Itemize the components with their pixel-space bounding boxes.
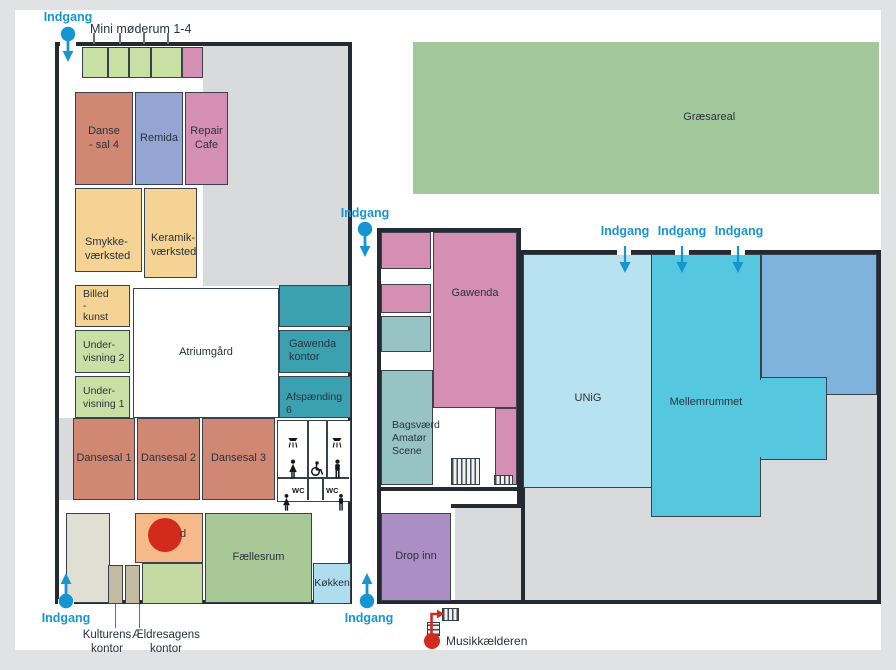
floor-plan-canvas: Græsareal Danse - sal 4 Remida Repair Ca… — [0, 0, 896, 670]
room-teal-unnamed — [279, 285, 351, 327]
woman-icon — [282, 481, 291, 511]
gawenda-kontor-label: Gawenda kontor — [289, 338, 336, 365]
faellesrum-label: Fællesrum — [233, 551, 285, 564]
unig-label: UNiG — [575, 392, 602, 405]
room-pink-b — [381, 284, 431, 313]
room-dark-blue — [761, 254, 877, 395]
room-faellesrum: Fællesrum — [205, 513, 312, 603]
room-aeldresagens-kontor — [125, 565, 140, 604]
dansesal-1-label: Dansesal 1 — [76, 452, 131, 465]
indgang-label: Indgang — [595, 224, 655, 238]
indgang-label: Indgang — [38, 611, 94, 625]
room-pink-sliver — [182, 47, 203, 78]
room-mini-moderum-3 — [129, 47, 151, 78]
man-icon — [333, 446, 342, 479]
aeldresagens-kontor-label: Ældresagens kontor — [128, 629, 204, 656]
room-repair-cafe: Repair Cafe — [185, 92, 228, 185]
room-atriumgaard: Atriumgård — [133, 288, 279, 418]
room-danse-sal-4: Danse - sal 4 — [75, 92, 133, 185]
wc-label: WC — [292, 486, 305, 495]
room-teal-c — [381, 316, 431, 352]
callout-tick — [143, 33, 145, 44]
room-billard: d — [135, 513, 203, 563]
room-keramikvaerksted: Keramik- værksted — [144, 188, 197, 278]
entrance-arrow-down-icon — [618, 246, 632, 274]
gawenda-label: Gawenda — [451, 287, 498, 300]
room-dansesal-2: Dansesal 2 — [137, 418, 200, 500]
indgang-label: Indgang — [652, 224, 712, 238]
room-pale-green — [142, 563, 203, 604]
room-pink-a — [381, 232, 431, 269]
callout-tick — [93, 33, 95, 44]
room-mini-moderum-1 — [82, 47, 108, 78]
callout-tick — [119, 33, 121, 44]
middle-lower-grey-area — [455, 508, 521, 600]
indgang-label: Indgang — [709, 224, 769, 238]
undervisning-2-label: Under- visning 2 — [83, 339, 124, 365]
room-unig: UNiG — [523, 254, 653, 488]
room-mini-moderum-4 — [151, 47, 182, 78]
room-koekken: Køkken — [313, 563, 351, 604]
repair-cafe-label: Repair Cafe — [190, 125, 222, 152]
room-billedkunst: Billed - kunst — [75, 285, 130, 327]
stairs-icon — [494, 475, 513, 485]
smykke-label: Smykke- værksted — [85, 236, 130, 263]
entrance-arrow-down-icon — [731, 246, 745, 274]
room-dansesal-1: Dansesal 1 — [73, 418, 135, 500]
room-remida: Remida — [135, 92, 183, 185]
indgang-label: Indgang — [335, 206, 395, 220]
callout-tick — [167, 33, 169, 44]
stairs-icon — [451, 458, 480, 485]
room-drop-inn: Drop inn — [381, 513, 451, 601]
koekken-label: Køkken — [314, 577, 350, 590]
dansesal-3-label: Dansesal 3 — [211, 452, 266, 465]
dansesal-2-label: Dansesal 2 — [141, 452, 196, 465]
callout-leader-line — [115, 604, 116, 628]
callout-leader-line — [139, 604, 140, 628]
mellemrummet-label: Mellemrummet — [670, 396, 743, 409]
billedkunst-label: Billed - kunst — [83, 289, 109, 324]
entrance-pin-icon — [60, 26, 76, 64]
man-icon — [337, 481, 345, 511]
danse-sal-4-label: Danse - sal 4 — [88, 125, 120, 152]
remida-label: Remida — [140, 132, 178, 145]
room-undervisning-1: Under- visning 1 — [75, 376, 130, 418]
room-mini-moderum-2 — [108, 47, 129, 78]
bagsvaerd-label: Bagsværd Amatør Scene — [392, 419, 440, 457]
mellemrummet-seam-patch — [756, 380, 763, 457]
room-gawenda-kontor: Gawenda kontor — [279, 330, 351, 373]
room-pink-column — [495, 408, 517, 485]
keramik-label: Keramik- værksted — [151, 232, 196, 259]
room-undervisning-2: Under- visning 2 — [75, 330, 130, 373]
indgang-label: Indgang — [341, 611, 397, 625]
room-gawenda: Gawenda — [433, 232, 517, 408]
musikkaelderen-label: Musikkælderen — [446, 634, 527, 648]
location-marker-icon — [148, 518, 182, 552]
room-mellemrummet-extension — [759, 377, 827, 460]
room-bagsvaerd-amatoer-scene: Bagsværd Amatør Scene — [381, 370, 433, 485]
entrance-pin-icon — [357, 221, 373, 259]
bent-arrow-icon — [428, 609, 446, 636]
graesareal-label: Græsareal — [683, 111, 735, 124]
afspaending-6-label: Afspænding 6 — [286, 391, 350, 417]
undervisning-1-label: Under- visning 1 — [83, 385, 124, 411]
indgang-label: Indgang — [38, 10, 98, 24]
room-dansesal-3: Dansesal 3 — [202, 418, 275, 500]
location-marker-icon — [424, 633, 440, 649]
area-graesareal: Græsareal — [413, 42, 879, 194]
middle-building-cross-wall — [377, 487, 521, 491]
mini-moderum-label: Mini møderum 1-4 — [90, 22, 191, 36]
woman-icon — [288, 446, 298, 479]
wheelchair-icon — [310, 448, 325, 477]
entrance-arrow-down-icon — [675, 246, 689, 274]
room-mellemrummet: Mellemrummet — [651, 254, 761, 517]
entrance-pin-icon — [359, 571, 375, 609]
room-afspaending-6: Afspænding 6 — [279, 376, 351, 418]
left-building-grey-strip — [59, 418, 73, 500]
bathroom-block: WC WC — [277, 420, 351, 502]
room-smykkevaerksted: Smykke- værksted — [75, 188, 142, 272]
room-kulturens-kontor — [108, 565, 123, 604]
entrance-pin-icon — [58, 571, 74, 609]
billard-label-partial: d — [180, 528, 186, 541]
atriumgaard-label: Atriumgård — [179, 346, 233, 359]
drop-inn-label: Drop inn — [395, 550, 437, 563]
